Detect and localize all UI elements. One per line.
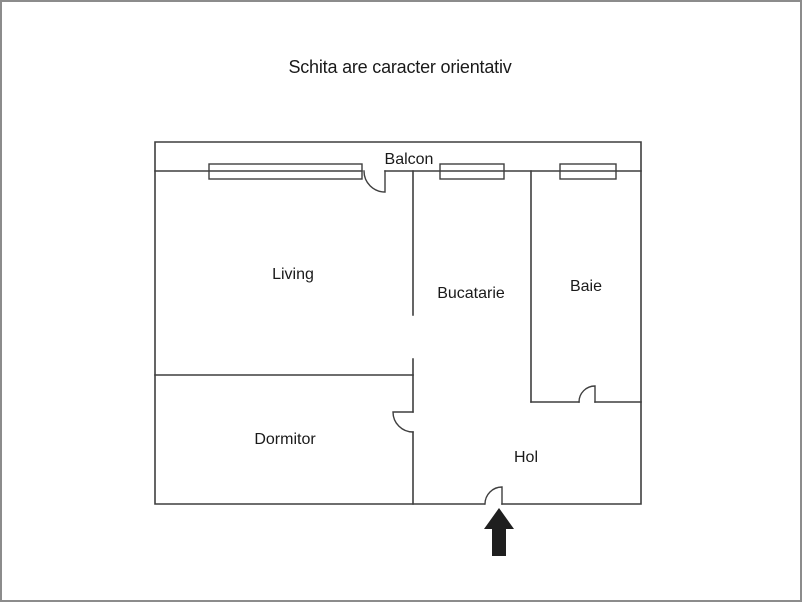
- page: Schita are caracter orientativ Balcon: [0, 0, 802, 602]
- room-labels-group: Balcon Living Bucatarie Baie Dormitor Ho…: [254, 151, 602, 466]
- room-label-balcon: Balcon: [385, 151, 434, 168]
- entrance-door-arc: [485, 487, 502, 504]
- room-label-dormitor: Dormitor: [254, 431, 316, 448]
- room-label-bucatarie: Bucatarie: [437, 285, 505, 302]
- room-label-living: Living: [272, 266, 314, 283]
- room-label-hol: Hol: [514, 449, 538, 466]
- balcony-door-arc: [364, 171, 385, 192]
- bath-door-arc: [579, 386, 595, 402]
- plan-outer-walls: [155, 142, 641, 504]
- room-label-baie: Baie: [570, 278, 602, 295]
- floor-plan-svg: Balcon Living Bucatarie Baie Dormitor Ho…: [2, 2, 802, 602]
- walls-group: [155, 142, 641, 504]
- bedroom-door-arc: [393, 412, 413, 432]
- entrance-arrow-icon: [484, 508, 514, 556]
